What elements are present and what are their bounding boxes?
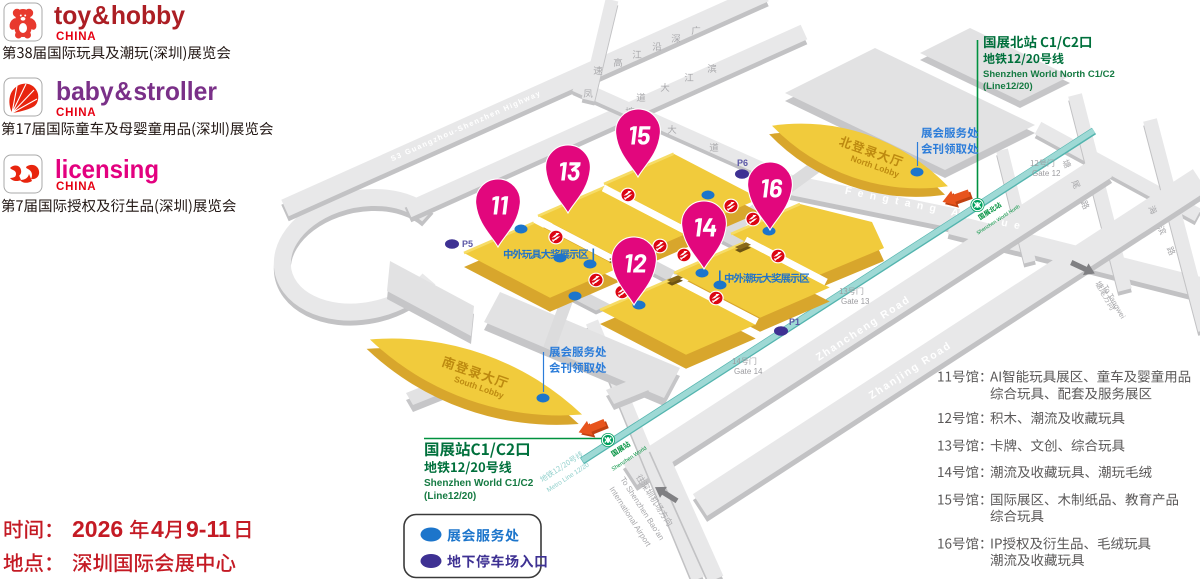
svg-text:toy&hobby: toy&hobby [54,0,186,30]
svg-text:Shenzhen World C1/C2: Shenzhen World C1/C2 [424,478,534,489]
svg-text:Gate 14: Gate 14 [734,367,763,376]
svg-text:9-11: 9-11 [186,516,231,542]
svg-text:4: 4 [151,516,164,542]
svg-text:Gate 12: Gate 12 [1032,169,1061,178]
svg-text:2026: 2026 [72,516,123,542]
svg-text:(Line12/20): (Line12/20) [424,491,476,502]
svg-text:Shenzhen World North C1/C2: Shenzhen World North C1/C2 [983,69,1115,80]
svg-text:CHINA: CHINA [56,181,96,193]
svg-text:P1: P1 [789,317,800,327]
svg-text:CHINA: CHINA [56,31,96,43]
svg-text:Gate 13: Gate 13 [841,297,870,306]
svg-text:(Line12/20): (Line12/20) [983,81,1033,92]
svg-text:baby&stroller: baby&stroller [56,76,217,106]
svg-text:CHINA: CHINA [56,107,96,119]
svg-text:P5: P5 [462,239,473,249]
svg-text:P6: P6 [737,158,748,168]
svg-text:licensing: licensing [55,154,159,184]
